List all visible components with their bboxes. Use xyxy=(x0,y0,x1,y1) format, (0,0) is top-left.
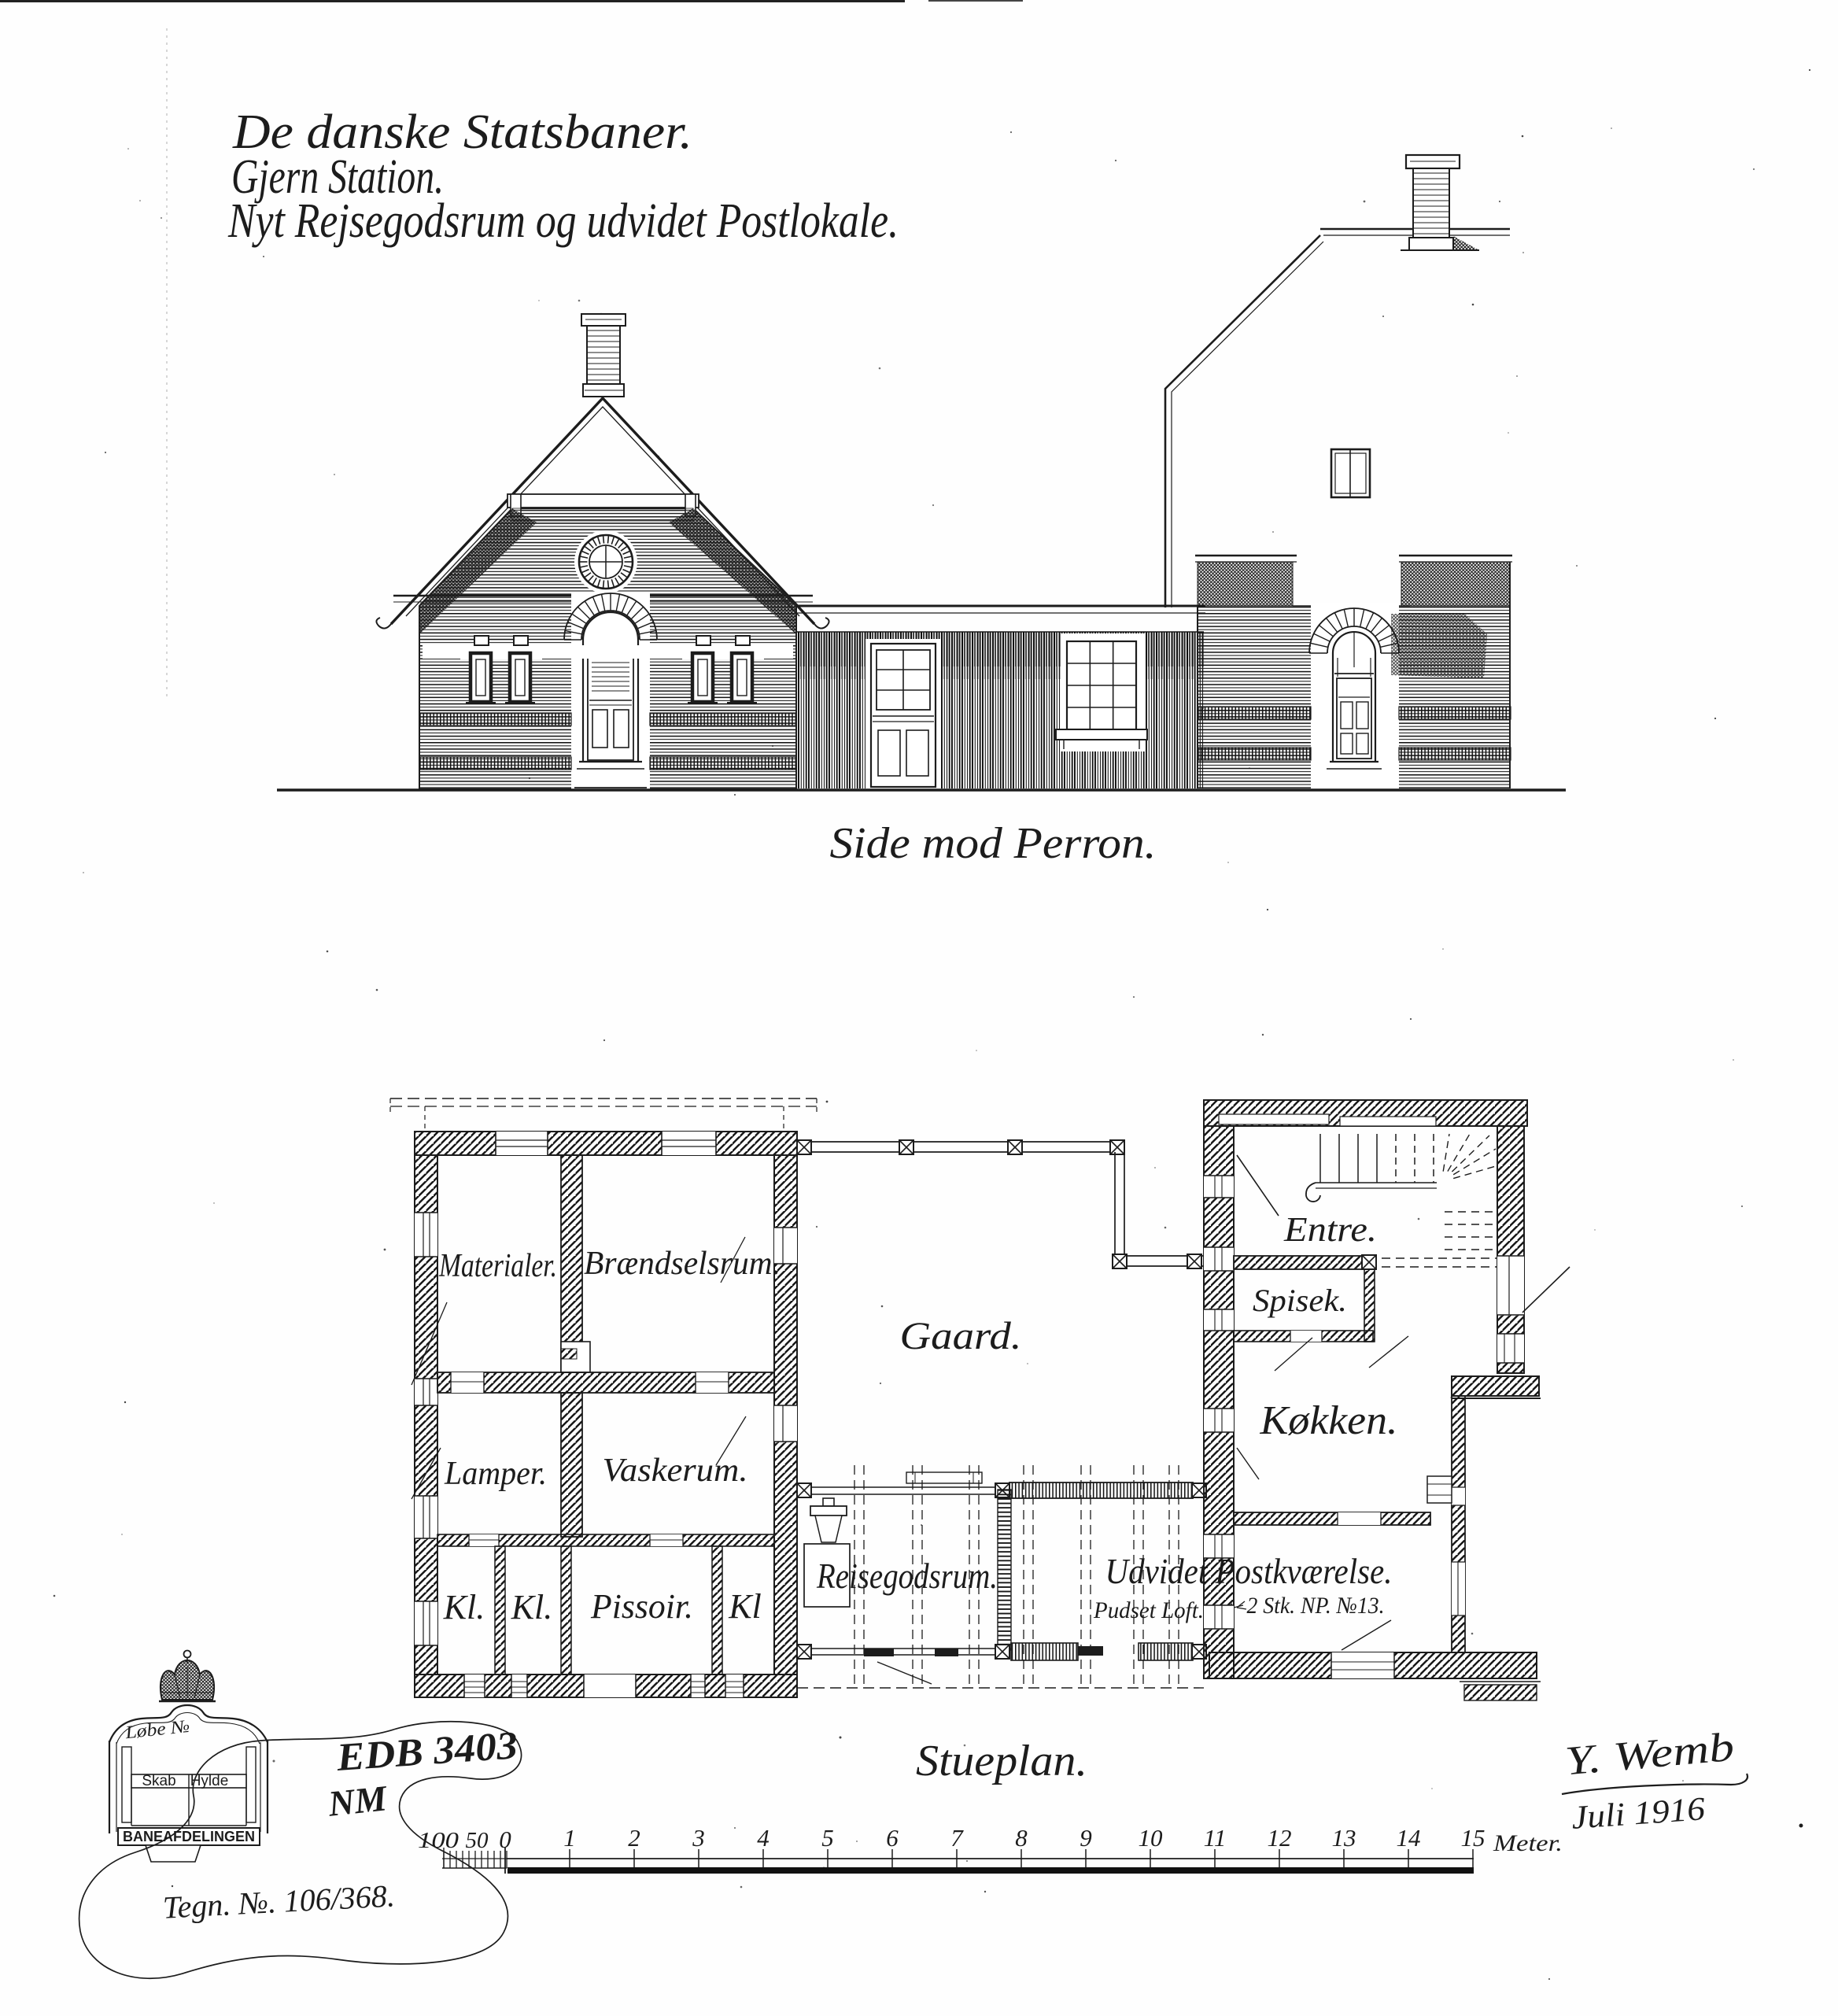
svg-text:4: 4 xyxy=(757,1824,770,1852)
svg-text:Kl.: Kl. xyxy=(443,1588,485,1626)
svg-text:Y. Wemb: Y. Wemb xyxy=(1563,1725,1736,1785)
svg-text:6: 6 xyxy=(886,1824,899,1852)
svg-text:NM: NM xyxy=(326,1778,390,1824)
svg-text:Side mod Perron.: Side mod Perron. xyxy=(830,819,1157,868)
svg-text:50: 50 xyxy=(466,1828,489,1853)
svg-text:Skab: Skab xyxy=(142,1773,175,1789)
svg-text:Materialer.: Materialer. xyxy=(438,1248,557,1284)
svg-text:9: 9 xyxy=(1080,1824,1092,1852)
svg-text:Tegn. №. 106/368.: Tegn. №. 106/368. xyxy=(162,1878,396,1925)
svg-text:7: 7 xyxy=(950,1824,964,1852)
svg-text:Kl.: Kl. xyxy=(511,1588,553,1626)
svg-text:10: 10 xyxy=(1139,1824,1164,1852)
svg-text:5: 5 xyxy=(821,1824,834,1852)
svg-text:13: 13 xyxy=(1332,1824,1356,1852)
svg-text:BANEAFDELINGEN: BANEAFDELINGEN xyxy=(123,1829,255,1844)
svg-text:Pudset Loft.: Pudset Loft. xyxy=(1093,1597,1204,1623)
svg-text:Pissoir.: Pissoir. xyxy=(590,1587,693,1626)
svg-text:Spisek.: Spisek. xyxy=(1253,1283,1347,1318)
svg-text:12: 12 xyxy=(1268,1824,1292,1852)
svg-text:8: 8 xyxy=(1015,1824,1028,1852)
svg-text:Vaskerum.: Vaskerum. xyxy=(603,1453,748,1489)
svg-text:14: 14 xyxy=(1397,1824,1421,1852)
svg-text:Nyt Rejsegodsrum og udvidet Po: Nyt Rejsegodsrum og udvidet Postlokale. xyxy=(227,194,899,248)
svg-text:Stueplan.: Stueplan. xyxy=(916,1737,1087,1785)
svg-text:.: . xyxy=(1798,1799,1807,1835)
svg-text:Gaard.: Gaard. xyxy=(900,1313,1022,1357)
svg-text:1: 1 xyxy=(563,1824,576,1852)
svg-text:EDB 3403: EDB 3403 xyxy=(334,1722,519,1779)
svg-text:15: 15 xyxy=(1461,1824,1486,1852)
svg-text:Udvidet Postkværelse.: Udvidet Postkværelse. xyxy=(1105,1551,1393,1591)
svg-text:Lamper.: Lamper. xyxy=(444,1456,547,1492)
svg-text:11: 11 xyxy=(1204,1824,1227,1852)
svg-text:Entre.: Entre. xyxy=(1283,1210,1377,1249)
svg-text:Reisegodsrum.: Reisegodsrum. xyxy=(816,1556,998,1596)
svg-text:2 Stk. NP. №13.: 2 Stk. NP. №13. xyxy=(1247,1593,1385,1619)
svg-text:3: 3 xyxy=(692,1824,705,1852)
svg-text:2: 2 xyxy=(628,1824,640,1852)
svg-text:Meter.: Meter. xyxy=(1493,1830,1563,1856)
svg-text:Kl: Kl xyxy=(728,1587,762,1626)
svg-text:Køkken.: Køkken. xyxy=(1259,1398,1397,1443)
svg-text:Brændselsrum.: Brændselsrum. xyxy=(584,1246,781,1282)
svg-text:Juli 1916: Juli 1916 xyxy=(1570,1791,1707,1837)
